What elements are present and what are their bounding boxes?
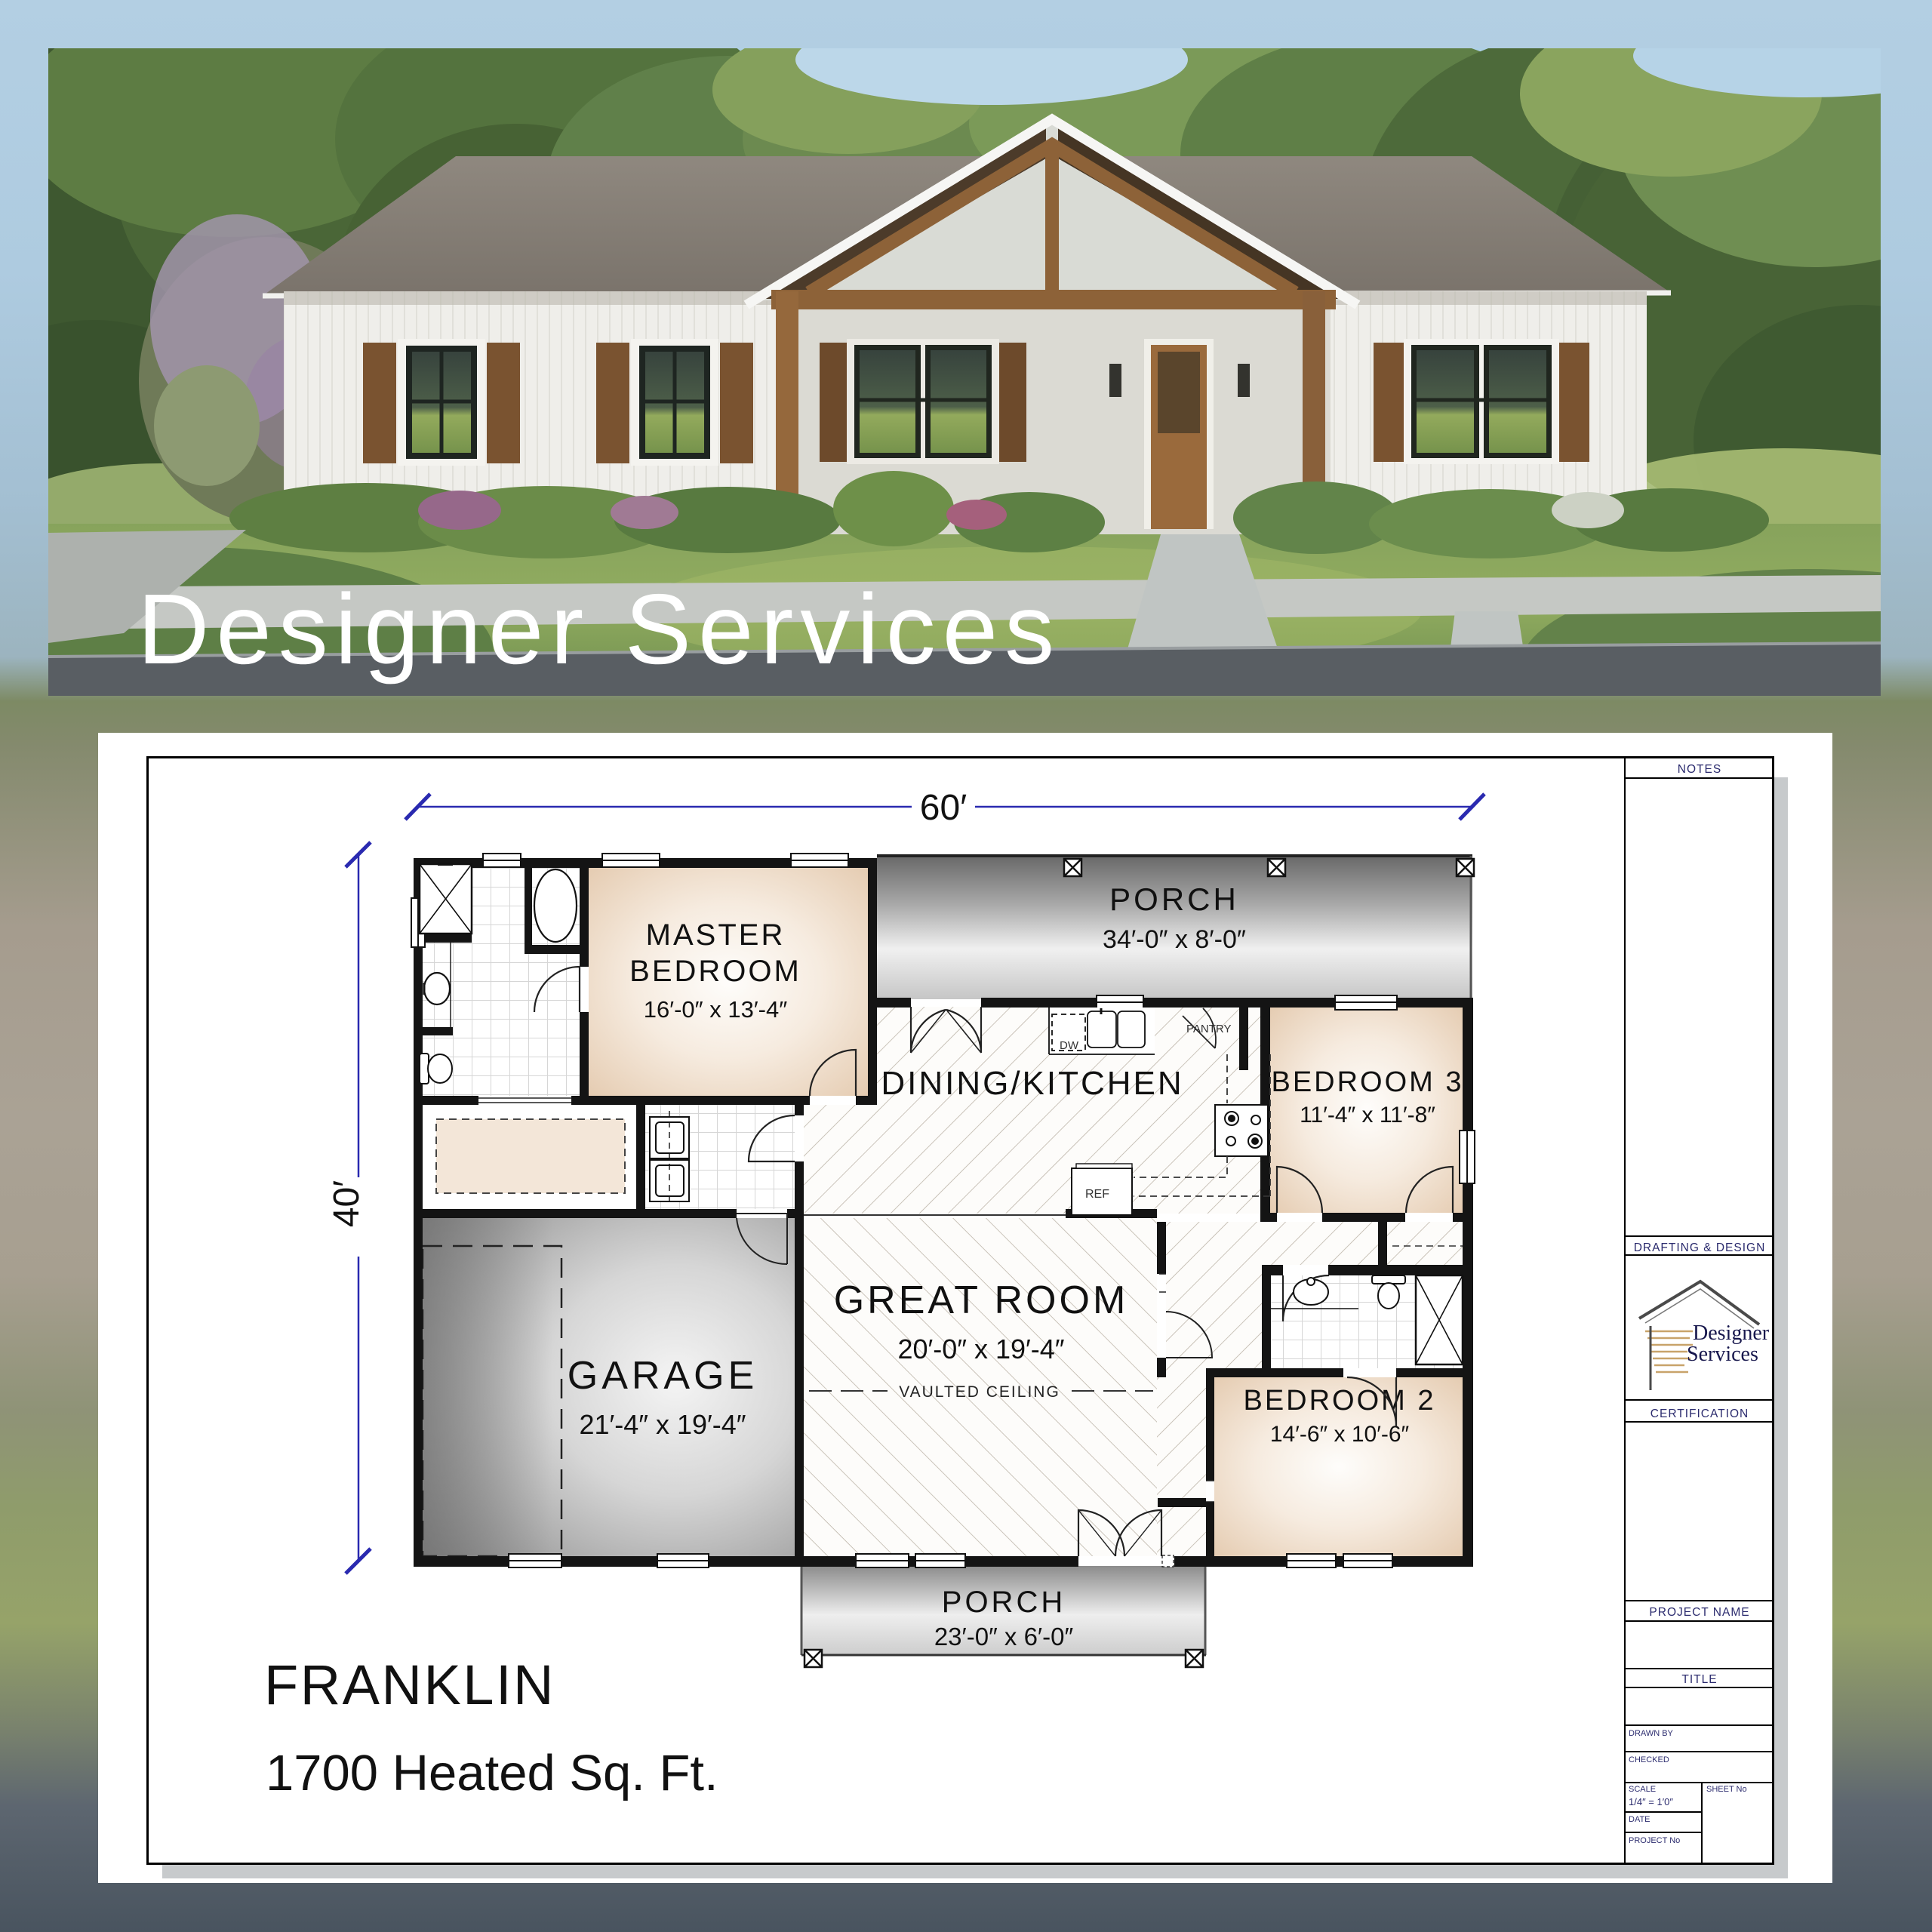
svg-text:PROJECT NAME: PROJECT NAME: [1649, 1606, 1749, 1619]
svg-text:40′: 40′: [327, 1180, 367, 1227]
svg-text:Designer: Designer: [1693, 1321, 1770, 1345]
svg-text:14′-6″ x 10′-6″: 14′-6″ x 10′-6″: [1270, 1422, 1410, 1447]
svg-text:DINING/KITCHEN: DINING/KITCHEN: [881, 1065, 1183, 1102]
svg-text:GARAGE: GARAGE: [568, 1354, 758, 1398]
svg-text:DW: DW: [1060, 1039, 1079, 1052]
svg-text:1/4″ = 1′0″: 1/4″ = 1′0″: [1629, 1796, 1673, 1807]
svg-text:1700 Heated Sq. Ft.: 1700 Heated Sq. Ft.: [266, 1745, 718, 1801]
svg-text:SHEET No: SHEET No: [1706, 1785, 1747, 1794]
svg-text:11′-4″ x 11′-8″: 11′-4″ x 11′-8″: [1300, 1103, 1435, 1128]
svg-text:DRAFTING & DESIGN: DRAFTING & DESIGN: [1634, 1241, 1766, 1254]
svg-text:REF: REF: [1085, 1188, 1109, 1201]
svg-text:Services: Services: [1687, 1343, 1758, 1366]
svg-text:TITLE: TITLE: [1681, 1673, 1717, 1686]
svg-text:GREAT ROOM: GREAT ROOM: [834, 1278, 1129, 1322]
svg-text:BEDROOM 3: BEDROOM 3: [1271, 1066, 1463, 1098]
svg-text:NOTES: NOTES: [1678, 763, 1721, 776]
svg-text:16′-0″ x 13′-4″: 16′-0″ x 13′-4″: [644, 996, 787, 1023]
svg-text:MASTER: MASTER: [646, 918, 786, 952]
svg-text:PORCH: PORCH: [1109, 881, 1239, 917]
svg-text:60′: 60′: [920, 788, 967, 828]
svg-text:CERTIFICATION: CERTIFICATION: [1651, 1407, 1749, 1420]
svg-text:BEDROOM: BEDROOM: [629, 955, 801, 988]
svg-text:21′-4″ x 19′-4″: 21′-4″ x 19′-4″: [579, 1409, 746, 1440]
svg-text:FRANKLIN: FRANKLIN: [264, 1654, 555, 1716]
svg-text:PANTRY: PANTRY: [1186, 1023, 1231, 1035]
svg-text:34′-0″ x 8′-0″: 34′-0″ x 8′-0″: [1103, 925, 1246, 954]
svg-text:CHECKED: CHECKED: [1629, 1755, 1669, 1764]
svg-text:PORCH: PORCH: [942, 1586, 1066, 1619]
svg-text:DRAWN BY: DRAWN BY: [1629, 1729, 1674, 1738]
svg-text:20′-0″ x 19′-4″: 20′-0″ x 19′-4″: [897, 1334, 1064, 1364]
svg-text:23′-0″ x 6′-0″: 23′-0″ x 6′-0″: [934, 1623, 1074, 1651]
svg-text:SCALE: SCALE: [1629, 1785, 1656, 1794]
svg-text:DATE: DATE: [1629, 1815, 1651, 1824]
svg-text:VAULTED CEILING: VAULTED CEILING: [899, 1383, 1060, 1401]
svg-text:BEDROOM 2: BEDROOM 2: [1243, 1385, 1435, 1417]
svg-text:PROJECT No: PROJECT No: [1629, 1836, 1680, 1845]
